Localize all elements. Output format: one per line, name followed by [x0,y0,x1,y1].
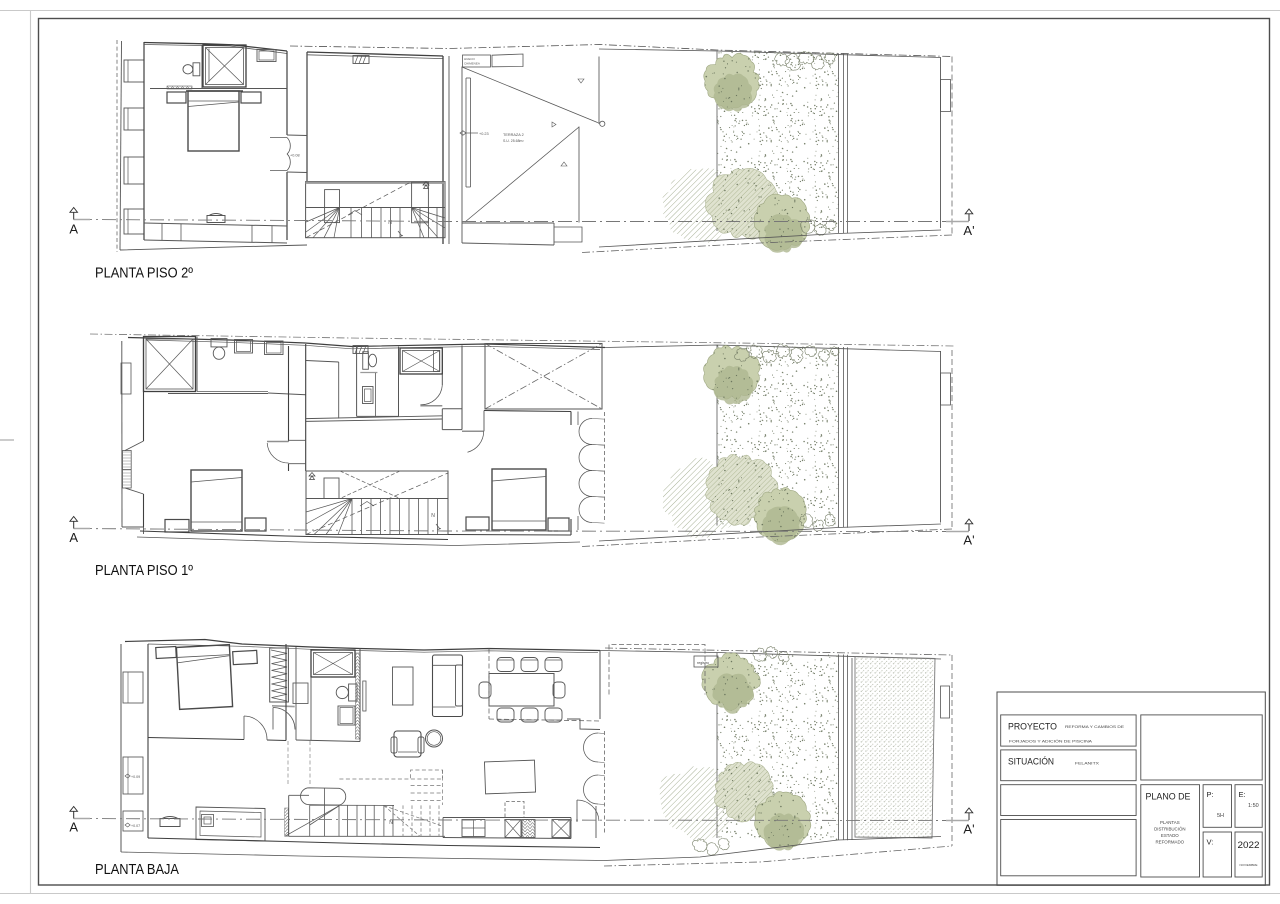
svg-text:HUECO: HUECO [464,57,476,61]
svg-text:CHIMENEA: CHIMENEA [464,62,480,66]
svg-text:1:50: 1:50 [1248,803,1259,809]
svg-text:2022: 2022 [1238,840,1260,851]
svg-text:P:: P: [1207,790,1214,799]
svg-text:REFORMADO: REFORMADO [1156,840,1185,845]
svg-text:A': A' [963,533,974,548]
svg-text:FORJADOS Y ADICIÓN DE PISCINA: FORJADOS Y ADICIÓN DE PISCINA [1009,739,1093,744]
svg-text:N: N [431,513,435,519]
svg-text:S.U. 25.68m²: S.U. 25.68m² [503,139,524,143]
svg-text:+0.08: +0.08 [290,154,300,158]
svg-text:DISTRIBUCIÓN: DISTRIBUCIÓN [1154,827,1185,832]
svg-text:N: N [389,820,393,826]
svg-text:PLANTA PISO 2º: PLANTA PISO 2º [95,266,194,282]
svg-text:FELANITX: FELANITX [1075,761,1100,766]
svg-text:registro: registro [697,661,709,665]
svg-text:A: A [69,222,78,237]
svg-text:SITUACIÓN: SITUACIÓN [1008,757,1054,767]
svg-text:REFORMA Y CAMBIOS DE: REFORMA Y CAMBIOS DE [1065,725,1125,729]
svg-text:+0.23: +0.23 [479,132,489,136]
svg-text:V:: V: [1207,838,1214,847]
svg-text:PLANTA BAJA: PLANTA BAJA [95,862,179,878]
svg-text:PLANTAS: PLANTAS [1160,820,1180,825]
svg-text:5H: 5H [1217,813,1224,819]
svg-text:PLANTA PISO 1º: PLANTA PISO 1º [95,563,194,579]
svg-text:ESTADO: ESTADO [1161,833,1179,838]
svg-text:PLANO DE: PLANO DE [1146,792,1191,802]
svg-text:+0.07: +0.07 [131,824,140,828]
svg-text:E:: E: [1239,790,1246,799]
svg-text:A': A' [963,822,974,837]
svg-text:TERRAZA 2: TERRAZA 2 [503,133,524,137]
svg-text:NOVIEMBRE: NOVIEMBRE [1239,863,1257,867]
svg-text:A: A [69,820,78,835]
svg-text:A: A [69,530,78,545]
svg-text:PROYECTO: PROYECTO [1008,722,1057,732]
svg-text:A': A' [963,223,974,238]
svg-text:+0.09: +0.09 [131,775,140,779]
